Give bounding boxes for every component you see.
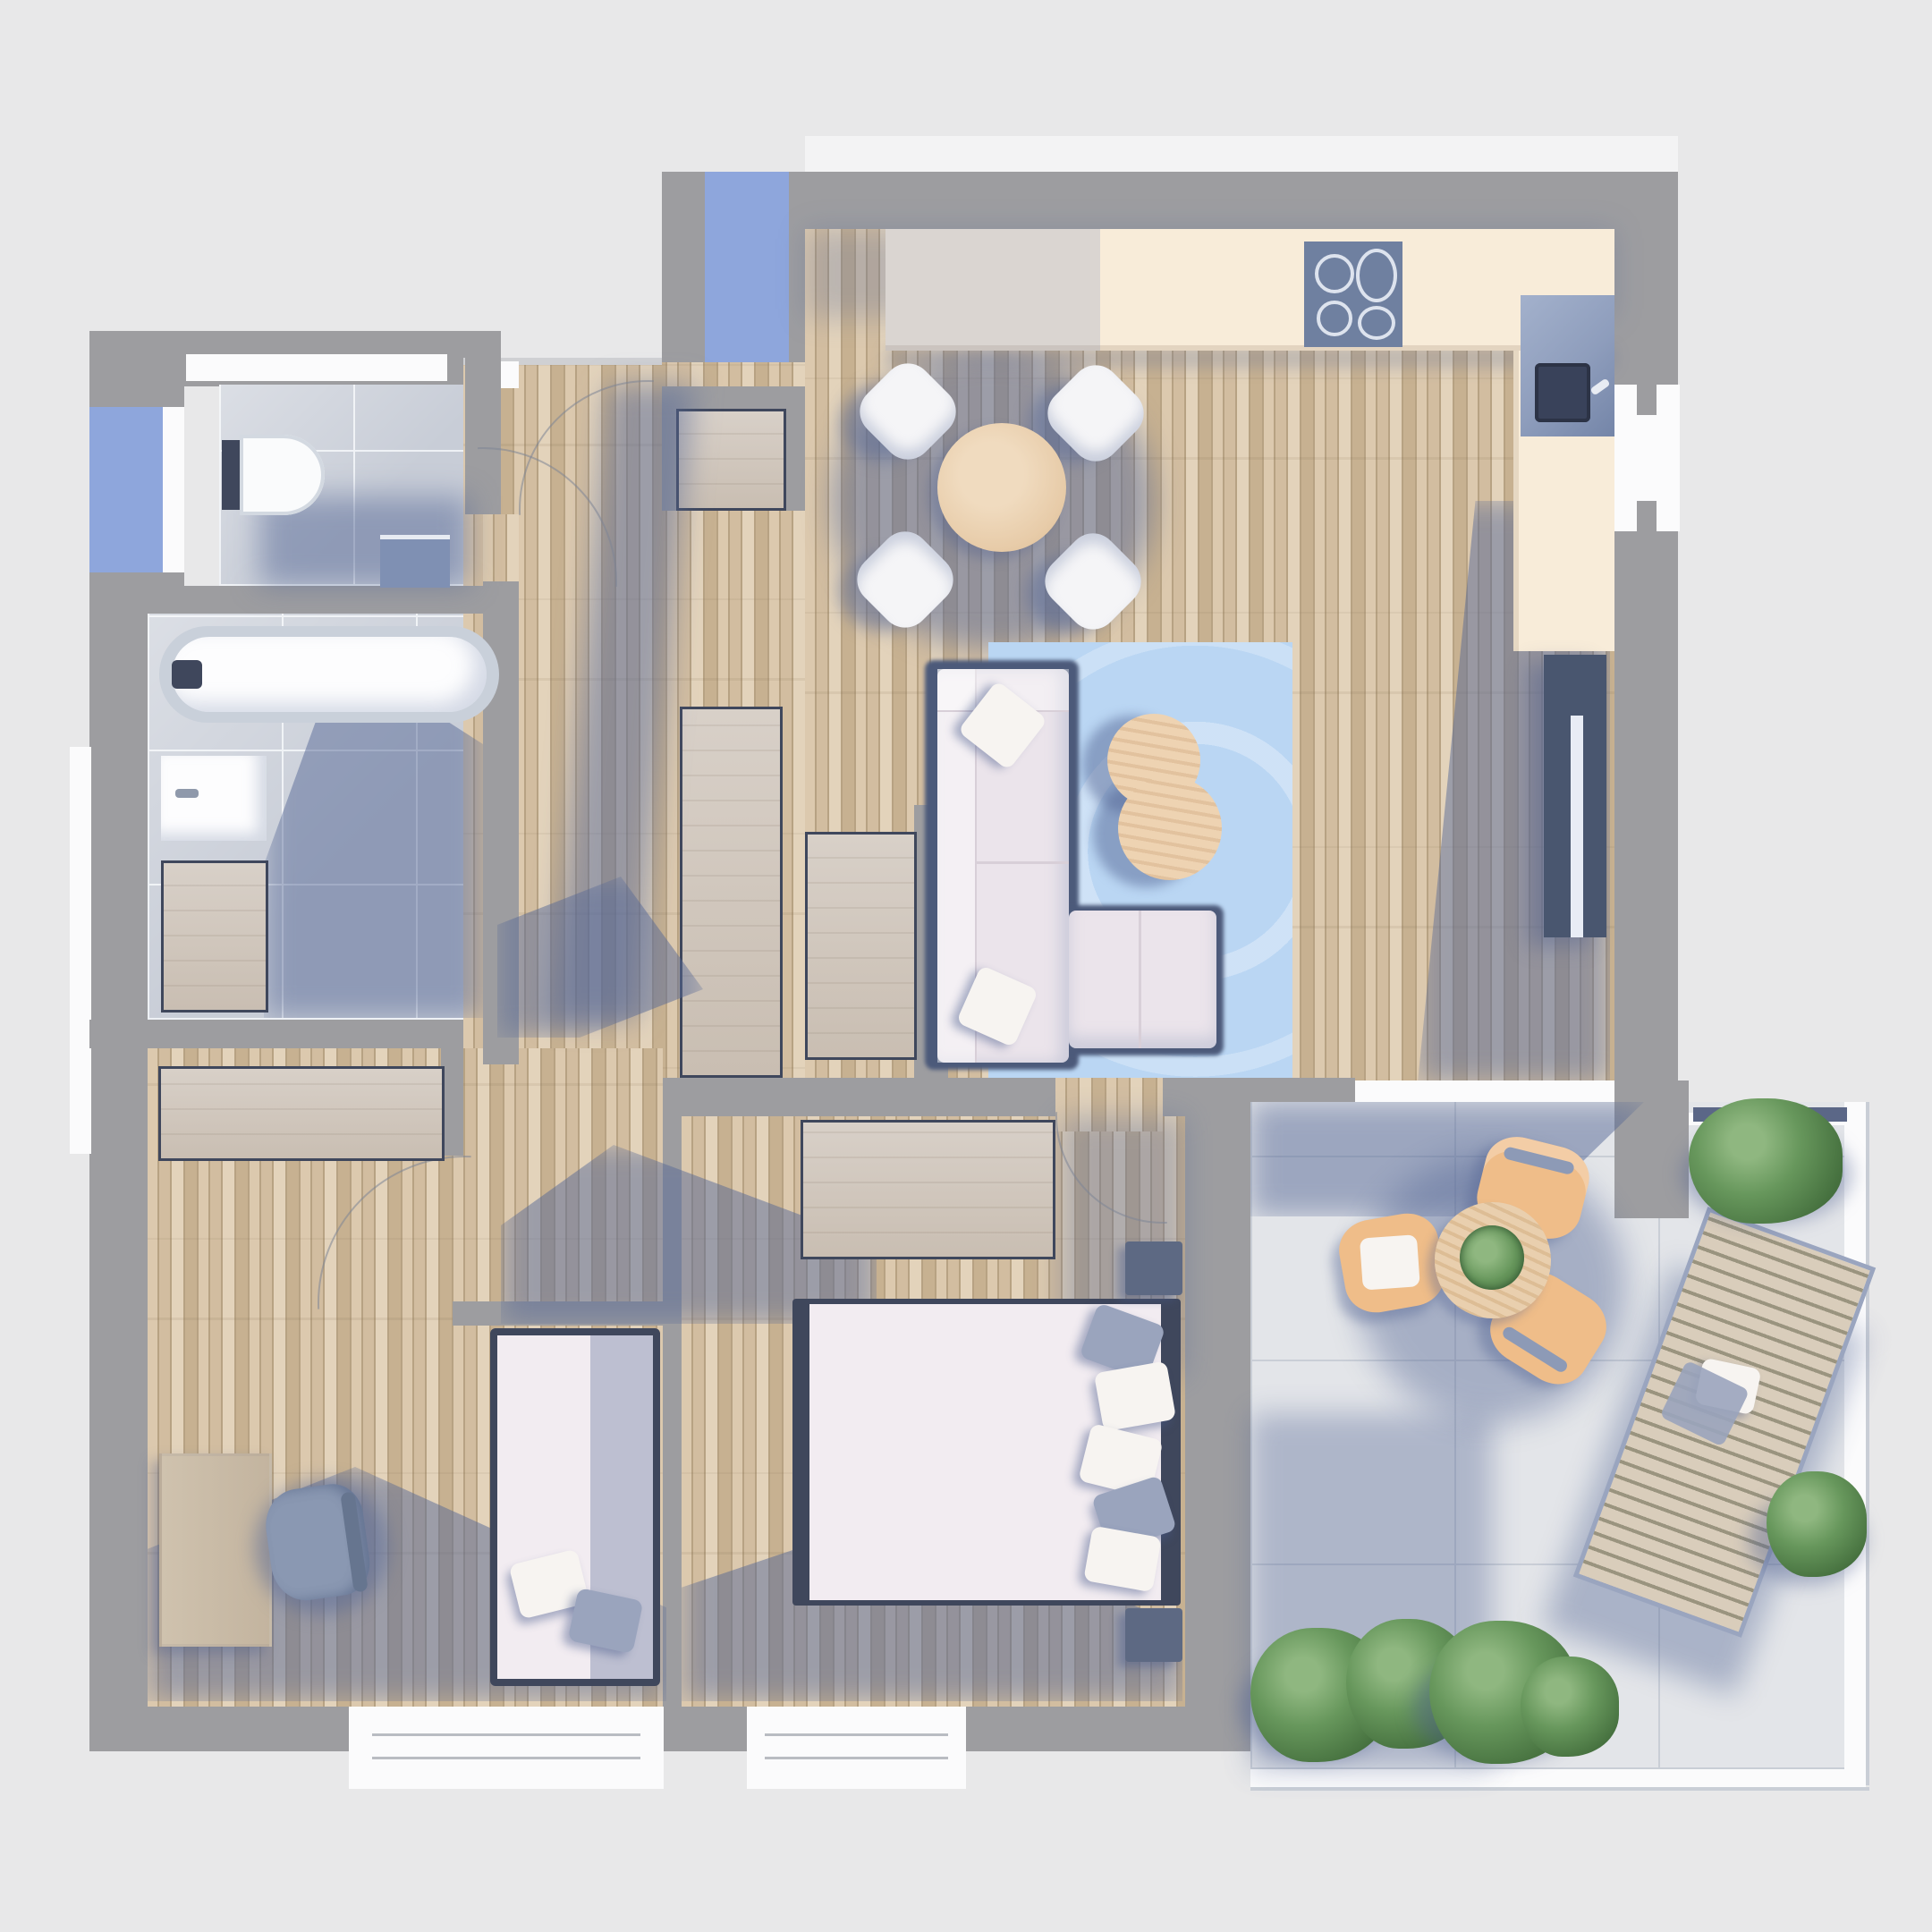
nightstand: [1125, 1241, 1182, 1295]
hall-wardrobe: [680, 707, 783, 1078]
wall-top: [662, 172, 1678, 229]
entrance-blue-mat: [705, 172, 789, 371]
terrace-door-threshold: [1355, 1080, 1653, 1104]
cooktop-burner: [1317, 301, 1352, 336]
window-line: [372, 1757, 640, 1759]
left-blue-window: [89, 407, 163, 572]
roomE-sideboard: [158, 1066, 445, 1161]
window-mullion-top: [1637, 385, 1657, 415]
window-line: [765, 1733, 948, 1736]
window-line: [372, 1733, 640, 1736]
wall-bedroom-terrace: [1185, 1116, 1250, 1707]
bathtub-faucet: [172, 660, 202, 689]
bathtub-basin: [172, 637, 487, 712]
entry-closet: [676, 409, 786, 511]
sink-basin: [1535, 363, 1590, 422]
dining-table: [937, 423, 1066, 552]
cooktop-burner: [1356, 249, 1397, 302]
bedroom-window: [747, 1707, 966, 1789]
closet-right-wall: [784, 411, 805, 511]
left-window-frame: [163, 407, 184, 572]
cooktop-burner: [1358, 306, 1395, 340]
bedroom-wardrobe: [801, 1120, 1055, 1259]
wall-bottom: [89, 1707, 1250, 1751]
sideboard-lamp: [1571, 716, 1583, 937]
coffee-table: [1118, 776, 1222, 880]
bed-pillow: [1083, 1526, 1162, 1593]
wall-right: [1614, 172, 1678, 1080]
terrace-corner-wall: [1614, 1080, 1689, 1218]
wc-window: [186, 354, 447, 381]
bush: [1689, 1098, 1843, 1224]
bush: [1521, 1657, 1619, 1757]
toilet: [240, 435, 325, 515]
wall-bedroom-top-mid: [948, 1078, 1055, 1116]
bathroom-cabinet: [161, 860, 268, 1013]
terrace-railing-right: [1844, 1102, 1866, 1785]
table-plant: [1460, 1225, 1524, 1290]
toilet-cistern: [222, 440, 241, 510]
left-facade-strip: [70, 747, 91, 1154]
terrace-chair-slot: [1503, 1146, 1575, 1175]
top-parapet: [805, 136, 1678, 172]
sofa-chaise: [1069, 911, 1216, 1048]
wall-wc-bath-separator: [89, 586, 501, 614]
roomE-window: [349, 1707, 664, 1789]
wc-cabinet: [380, 535, 450, 588]
wall-bath-bottom: [89, 1020, 463, 1048]
washbasin: [161, 756, 267, 841]
bush: [1767, 1471, 1867, 1577]
sofa-cushion-line: [1139, 911, 1141, 1048]
wall-bedroom-top-left: [682, 1078, 948, 1116]
nightstand: [1125, 1608, 1182, 1662]
terrace-railing-line: [1866, 1102, 1869, 1785]
sofa-cushion-line: [975, 861, 1069, 864]
terrace-chair-cushion: [1360, 1234, 1420, 1290]
window-line: [765, 1757, 948, 1759]
terrace-railing-line: [1250, 1787, 1869, 1791]
cooktop-burner: [1315, 254, 1354, 293]
cooktop: [1304, 241, 1402, 347]
terrace-railing-bottom: [1250, 1769, 1866, 1787]
bed-pillow: [1094, 1360, 1176, 1431]
wall-left: [89, 610, 148, 1707]
corridor-wardrobe: [805, 832, 917, 1060]
washbasin-faucet: [175, 789, 199, 798]
floor-plan-canvas: [0, 0, 1932, 1932]
window-mullion-bottom: [1637, 501, 1657, 531]
kitchen-counter-shaded-end: [885, 229, 1100, 351]
